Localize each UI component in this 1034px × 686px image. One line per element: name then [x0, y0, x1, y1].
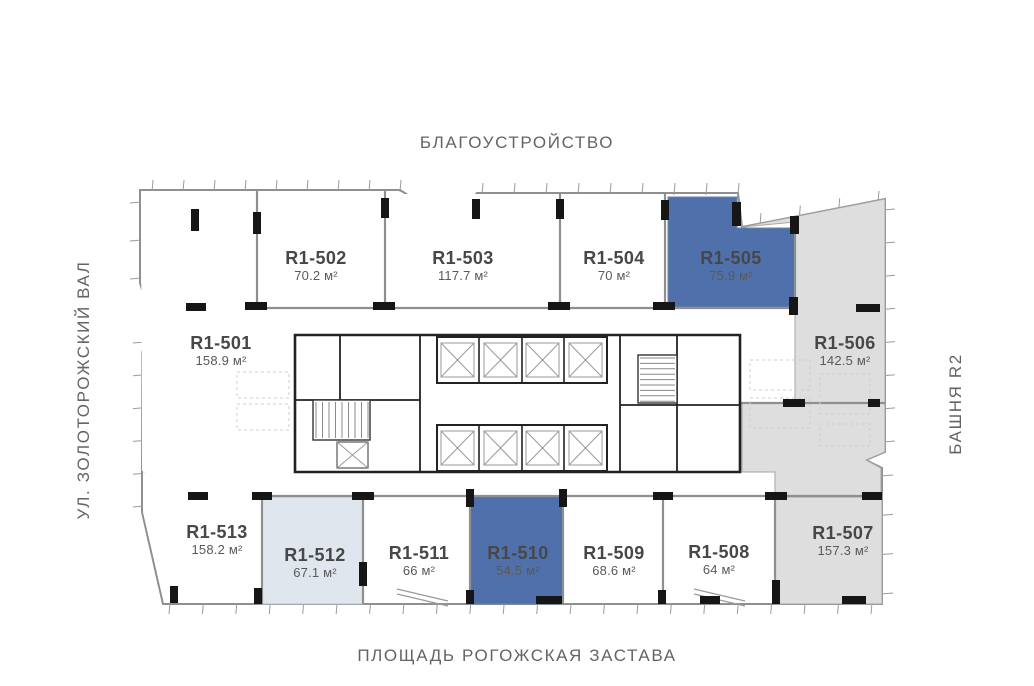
- unit-id: R1-507: [812, 523, 873, 543]
- unit-label-r1-504: R1-504 70 м²: [583, 248, 644, 284]
- unit-area: 117.7 м²: [432, 269, 493, 284]
- unit-area: 70.2 м²: [285, 269, 346, 284]
- staircase-left: [313, 400, 370, 440]
- unit-label-r1-502: R1-502 70.2 м²: [285, 248, 346, 284]
- unit-id: R1-512: [284, 545, 345, 565]
- unit-id: R1-505: [700, 248, 761, 268]
- unit-label-r1-507: R1-507 157.3 м²: [812, 523, 873, 559]
- unit-area: 64 м²: [688, 563, 749, 578]
- unit-area: 67.1 м²: [284, 566, 345, 581]
- unit-label-r1-501: R1-501 158.9 м²: [190, 333, 251, 369]
- unit-area: 70 м²: [583, 269, 644, 284]
- unit-id: R1-511: [389, 543, 449, 563]
- unit-id: R1-502: [285, 248, 346, 268]
- unit-label-r1-505: R1-505 75.9 м²: [700, 248, 761, 284]
- unit-area: 158.2 м²: [186, 543, 247, 558]
- elevator-bank-upper: [437, 337, 607, 383]
- floorplan-svg: [0, 0, 1034, 686]
- unit-area: 158.9 м²: [190, 354, 251, 369]
- unit-area: 157.3 м²: [812, 544, 873, 559]
- unit-label-r1-513: R1-513 158.2 м²: [186, 522, 247, 558]
- unit-area: 66 м²: [389, 564, 449, 579]
- surroundings-label-right: БАШНЯ R2: [946, 353, 966, 455]
- unit-id: R1-513: [186, 522, 247, 542]
- unit-id: R1-501: [190, 333, 251, 353]
- unit-id: R1-508: [688, 542, 749, 562]
- unit-id: R1-509: [583, 543, 644, 563]
- surroundings-label-top: БЛАГОУСТРОЙСТВО: [0, 133, 1034, 153]
- unit-area: 68.6 м²: [583, 564, 644, 579]
- unit-label-r1-503: R1-503 117.7 м²: [432, 248, 493, 284]
- unit-id: R1-506: [814, 333, 875, 353]
- unit-area: 75.9 м²: [700, 269, 761, 284]
- elevator-bank-lower: [437, 425, 607, 471]
- staircase-right: [638, 355, 677, 403]
- unit-label-r1-508: R1-508 64 м²: [688, 542, 749, 578]
- surroundings-label-left: УЛ. ЗОЛОТОРОЖСКИЙ ВАЛ: [74, 260, 94, 519]
- unit-label-r1-512: R1-512 67.1 м²: [284, 545, 345, 581]
- unit-label-r1-510: R1-510 54.5 м²: [487, 543, 548, 579]
- unit-id: R1-510: [487, 543, 548, 563]
- surroundings-label-bottom: ПЛОЩАДЬ РОГОЖСКАЯ ЗАСТАВА: [0, 646, 1034, 666]
- unit-label-r1-509: R1-509 68.6 м²: [583, 543, 644, 579]
- floorplan-page: БЛАГОУСТРОЙСТВО ПЛОЩАДЬ РОГОЖСКАЯ ЗАСТАВ…: [0, 0, 1034, 686]
- unit-id: R1-504: [583, 248, 644, 268]
- unit-label-r1-506: R1-506 142.5 м²: [814, 333, 875, 369]
- unit-area: 54.5 м²: [487, 564, 548, 579]
- unit-area: 142.5 м²: [814, 354, 875, 369]
- unit-label-r1-511: R1-511 66 м²: [389, 543, 449, 579]
- unit-id: R1-503: [432, 248, 493, 268]
